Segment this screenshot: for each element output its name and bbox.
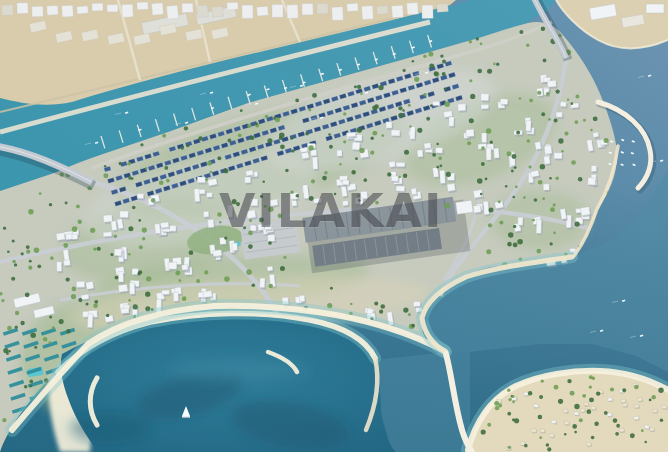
- aerial-map-image: [0, 0, 668, 452]
- aerial-masterplan-render: VILAKAI: [0, 0, 668, 452]
